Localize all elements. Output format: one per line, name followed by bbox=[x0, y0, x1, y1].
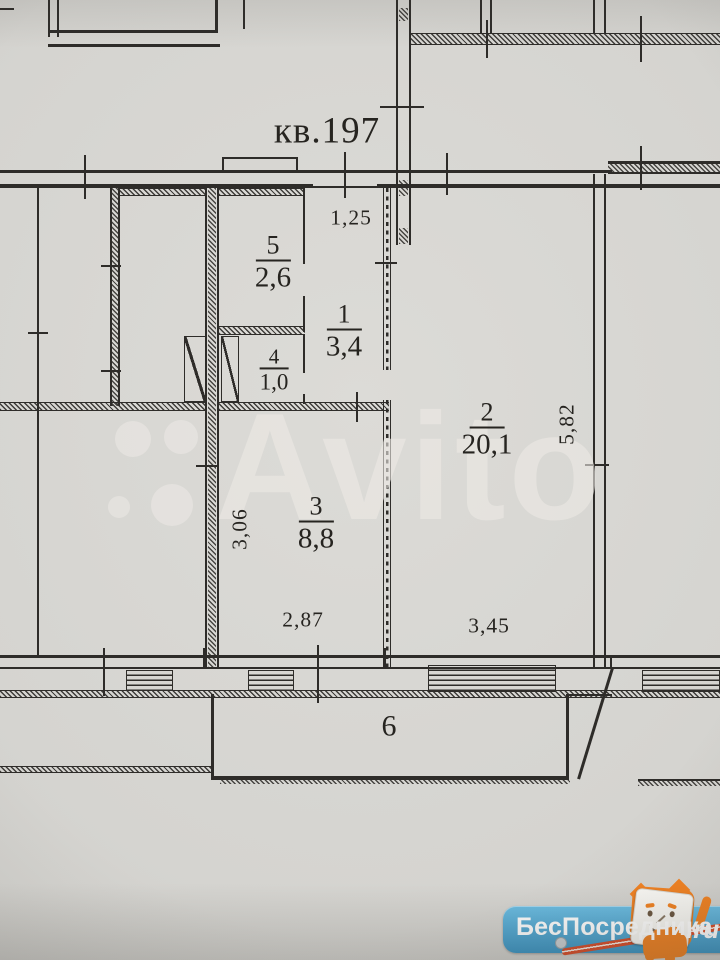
dim-living-depth: 5,82 bbox=[555, 403, 580, 445]
dim-kitchen-depth: 3,06 bbox=[228, 508, 253, 550]
room-area: 20,1 bbox=[462, 428, 513, 460]
wall bbox=[303, 188, 305, 264]
wall bbox=[480, 0, 492, 33]
floorplan-photo: Avito кв.197 5 2,6 1 3,4 4 1,0 2 20,1 3 … bbox=[0, 0, 720, 960]
hatched-wall bbox=[410, 33, 720, 45]
room-area: 8,8 bbox=[298, 522, 334, 554]
room-area: 2,6 bbox=[255, 261, 291, 293]
hatched-wall bbox=[399, 8, 408, 21]
tick-mark bbox=[103, 648, 105, 696]
room-area: 3,4 bbox=[326, 330, 362, 362]
wall bbox=[303, 335, 305, 373]
room-1-label: 1 3,4 bbox=[326, 302, 362, 363]
tick-mark bbox=[28, 332, 48, 334]
room-number: 2 bbox=[470, 400, 505, 429]
hatched-wall bbox=[399, 228, 408, 244]
wall bbox=[0, 655, 720, 658]
window bbox=[642, 670, 720, 692]
watermark-circle bbox=[115, 421, 151, 457]
tick-mark bbox=[101, 265, 121, 267]
watermark-circle bbox=[151, 484, 193, 526]
brand-site-name: БесПосредника bbox=[516, 913, 713, 942]
hatched-wall bbox=[399, 180, 408, 196]
watermark-circle bbox=[108, 496, 130, 518]
wall bbox=[215, 0, 218, 32]
wall bbox=[48, 44, 220, 47]
wall bbox=[593, 0, 606, 34]
tick-mark bbox=[446, 153, 448, 195]
diagonal-balcony-divider bbox=[577, 668, 613, 780]
hatched-wall bbox=[0, 766, 211, 773]
vent-shaft bbox=[184, 336, 206, 402]
room-number: 6 bbox=[382, 712, 397, 743]
wall bbox=[243, 0, 245, 29]
hatched-wall bbox=[220, 779, 570, 784]
brand-banner[interactable]: БесПосредника .ru bbox=[503, 880, 720, 960]
room-number: 5 bbox=[256, 233, 291, 262]
watermark-circle bbox=[164, 420, 198, 454]
room-area: 1,0 bbox=[260, 370, 289, 396]
hatched-wall bbox=[219, 188, 305, 196]
wall bbox=[396, 0, 411, 245]
wall bbox=[48, 30, 218, 33]
hatched-wall bbox=[118, 188, 206, 196]
window bbox=[248, 670, 294, 691]
dim-kitchen-width: 2,87 bbox=[282, 608, 324, 633]
dim-hall-width: 1,25 bbox=[330, 206, 372, 231]
brand-tld: .ru bbox=[686, 914, 719, 945]
wall bbox=[568, 694, 612, 696]
tick-mark bbox=[375, 262, 397, 264]
hatched-wall bbox=[0, 402, 206, 411]
dim-living-width: 3,45 bbox=[468, 614, 510, 639]
tick-mark bbox=[344, 152, 346, 198]
tick-mark bbox=[640, 16, 642, 62]
room-number: 3 bbox=[299, 494, 334, 523]
tick-mark bbox=[380, 106, 424, 108]
window bbox=[126, 670, 173, 691]
hatched-wall bbox=[112, 188, 118, 406]
room-2-label: 2 20,1 bbox=[462, 400, 513, 461]
cat-eyebrow bbox=[645, 903, 654, 908]
hatched-wall bbox=[219, 326, 305, 335]
cat-paw bbox=[645, 952, 655, 960]
wall bbox=[37, 188, 39, 655]
tick-mark bbox=[84, 155, 86, 199]
tick-mark bbox=[203, 648, 205, 668]
room-4-label: 4 1,0 bbox=[260, 346, 289, 395]
room-number: 4 bbox=[260, 346, 289, 369]
hatched-wall bbox=[638, 781, 720, 786]
tick-mark bbox=[0, 8, 14, 10]
wall bbox=[608, 172, 720, 174]
hatched-wall bbox=[608, 164, 720, 172]
tick-mark bbox=[640, 146, 642, 190]
wall bbox=[0, 170, 612, 173]
avito-watermark: Avito bbox=[215, 398, 604, 538]
wall bbox=[383, 188, 391, 370]
wall bbox=[0, 184, 313, 188]
apartment-number-label: кв.197 bbox=[274, 110, 380, 153]
tick-mark bbox=[384, 648, 386, 668]
room-5-label: 5 2,6 bbox=[255, 233, 291, 294]
cat-paw bbox=[665, 954, 675, 960]
wall bbox=[377, 184, 720, 188]
window bbox=[428, 665, 556, 692]
tick-mark bbox=[101, 370, 121, 372]
cat-eyebrow bbox=[667, 903, 677, 910]
room-6-label: 6 bbox=[382, 712, 397, 743]
room-3-label: 3 8,8 bbox=[298, 494, 334, 555]
room-number: 1 bbox=[327, 302, 362, 331]
